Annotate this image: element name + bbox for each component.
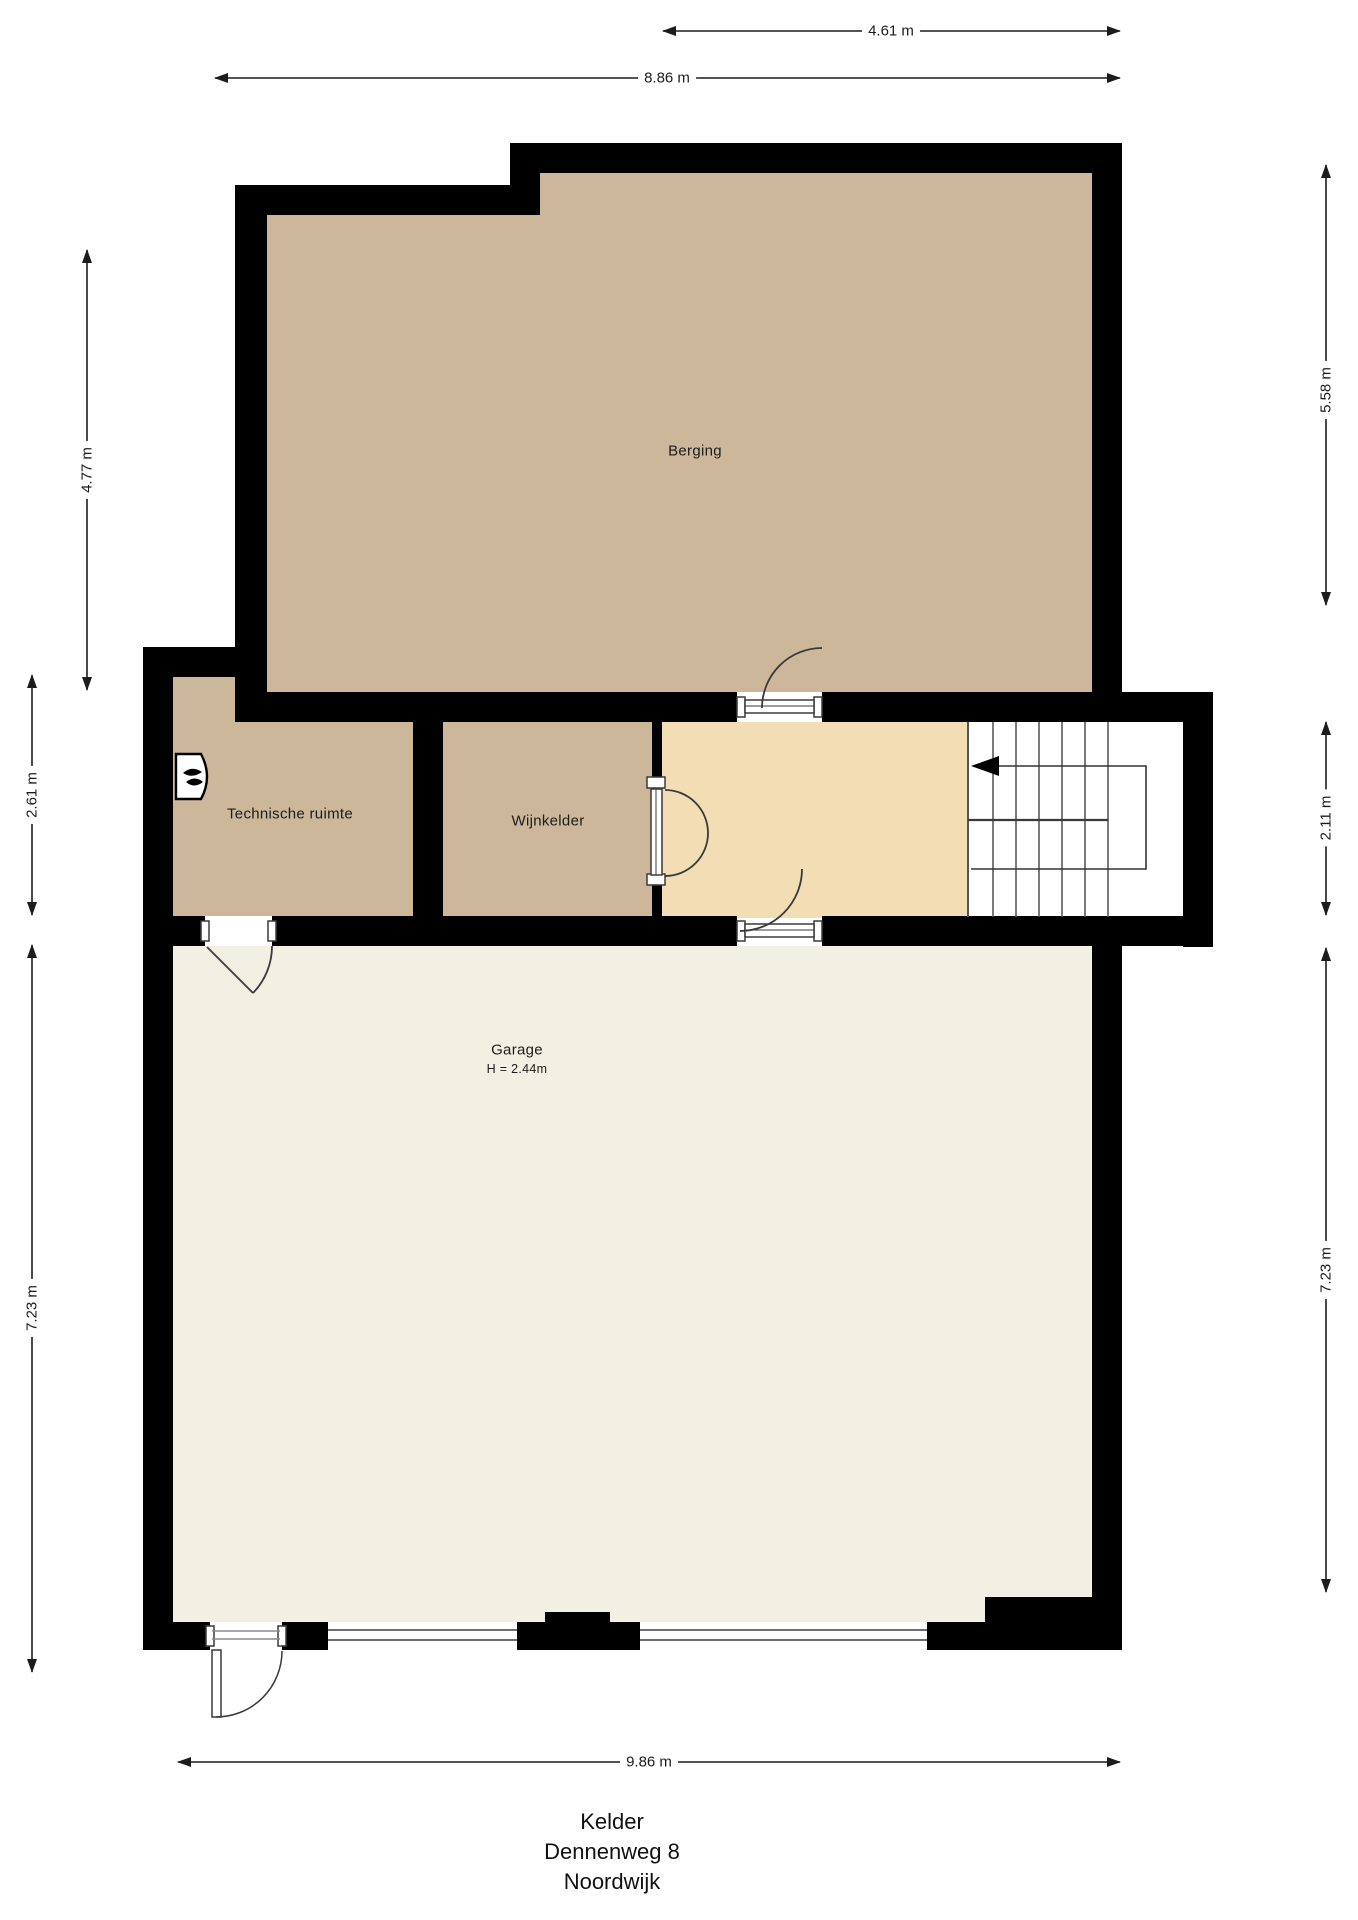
room-floor-garage: [173, 946, 1092, 1622]
boiler-icon: [176, 754, 207, 799]
dim-label-top-partial: 4.61 m: [862, 23, 920, 40]
dim-label-left-lower: 7.23 m: [24, 1279, 41, 1337]
dim-label-left-middle: 2.61 m: [24, 766, 41, 824]
room-label-garage: Garage: [491, 1042, 543, 1059]
title-street: Dennenweg 8: [544, 1839, 680, 1865]
dim-label-bottom: 9.86 m: [620, 1754, 678, 1771]
floorplan-drawing: [0, 0, 1358, 1920]
title-floor: Kelder: [580, 1809, 644, 1835]
garage-window-right: [640, 1622, 927, 1650]
door-garage-exterior: [206, 1626, 286, 1717]
room-floor-hall: [662, 722, 968, 918]
room-label-berging: Berging: [668, 443, 722, 460]
room-label-wijnkelder: Wijnkelder: [511, 813, 584, 830]
dim-label-right-upper: 5.58 m: [1318, 361, 1335, 419]
title-city: Noordwijk: [564, 1869, 661, 1895]
room-floor-berging: [267, 173, 1092, 692]
dim-label-right-lower: 7.23 m: [1318, 1241, 1335, 1299]
room-label-technische: Technische ruimte: [227, 806, 353, 823]
dim-label-right-middle: 2.11 m: [1318, 790, 1335, 847]
dim-label-top-full: 8.86 m: [638, 70, 696, 87]
dim-label-left-upper: 4.77 m: [79, 441, 96, 499]
floorplan-page: Berging Technische ruimte Wijnkelder Gar…: [0, 0, 1358, 1920]
garage-window-left: [328, 1622, 517, 1650]
room-label-garage-height: H = 2.44m: [487, 1062, 548, 1076]
